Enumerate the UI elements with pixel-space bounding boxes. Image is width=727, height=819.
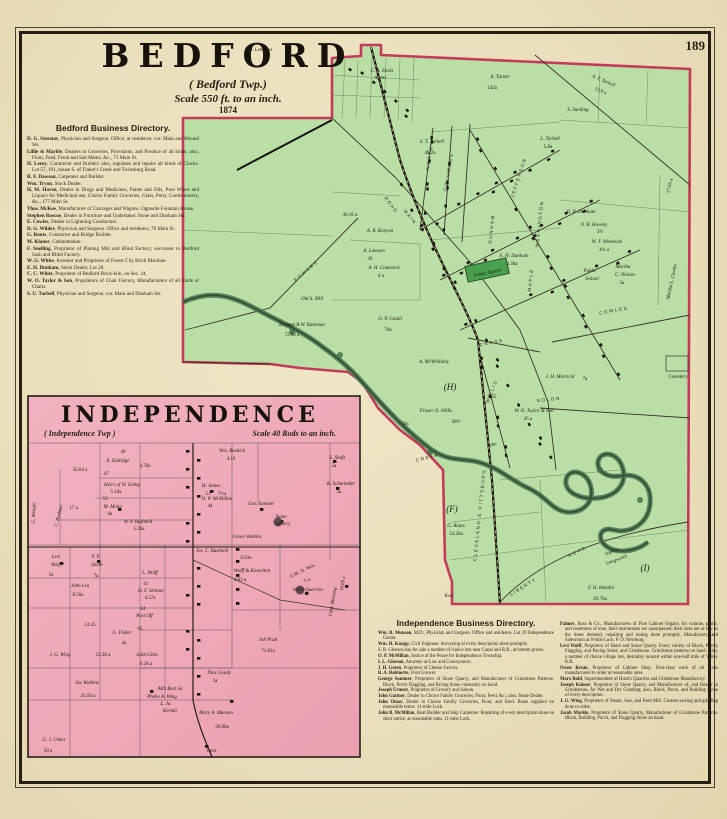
map-label: Cem. — [207, 749, 218, 754]
map-label: 4¾ a — [599, 248, 610, 253]
map-label: 12.38 a — [96, 653, 112, 658]
map-label: Jos. C. Bushnell — [196, 549, 229, 554]
map-label: 4.10 — [227, 457, 236, 462]
building — [197, 585, 200, 588]
map-label: 54.26a — [449, 532, 463, 537]
directory-entry: Thos. McKee, Manufacturer of Carriages a… — [27, 206, 199, 212]
directory-entry: Wm. Tryon, Stock Dealer. — [27, 181, 199, 187]
map-label: S. T. Tarbell — [420, 140, 445, 145]
independence-scale: Scale 40 Rods to an inch. — [252, 429, 336, 438]
map-label: 53 — [103, 497, 109, 502]
building — [186, 594, 189, 597]
map-label: A. Lamson — [362, 249, 385, 254]
map-label: A. Turner — [489, 75, 509, 80]
directory-entry: I. L. Gleeson, Attorney-at-Law and Conve… — [378, 660, 554, 665]
map-label: 4.36a — [507, 262, 519, 267]
building — [197, 639, 200, 642]
map-label: 44 — [208, 504, 214, 509]
directory-entry: W. O. Taylor & Son, Proprietors of Chair… — [27, 278, 199, 290]
building — [197, 513, 200, 516]
map-label: 7a — [94, 574, 100, 579]
map-label: 5.8a — [544, 145, 553, 150]
map-label: E. H. Dunham — [499, 254, 529, 259]
map-label: J. H. Morrical — [546, 375, 575, 380]
map-label: 56.04 a — [73, 468, 89, 473]
map-label: 65 — [138, 627, 144, 632]
directory-entry: C. C. White, Proprietor of Bedford Brick… — [27, 271, 199, 277]
building — [197, 459, 200, 462]
map-label: 7a — [583, 377, 589, 382]
directory-entry: D. G. Wilder, Physician and Surgeon. Off… — [27, 226, 199, 232]
map-label: 6.18 a — [140, 662, 153, 667]
map-label: Post Off. — [135, 614, 154, 619]
map-label: O. P. Gould — [378, 317, 402, 322]
map-label: 45 a — [524, 417, 533, 422]
map-label: 3½ — [597, 230, 604, 235]
directory-entry: John Gattner, Dealer in Choice Family Gr… — [378, 694, 554, 699]
tree — [597, 467, 603, 473]
directory-entry: D. G. Streator, Physician and Surgeon. O… — [27, 136, 199, 148]
map-label: Phebe A. Wing — [146, 695, 177, 700]
building — [236, 588, 239, 591]
map-label: 12.45 — [84, 623, 96, 628]
map-label: (F) — [446, 504, 458, 514]
map-label: A. H. Comstock — [367, 266, 400, 271]
atlas-page: 49E. Eldridge4.76a56.04 a47Heirs of W. G… — [0, 0, 727, 819]
map-label: Wolff & Knowlton — [234, 569, 271, 574]
directory-entry: Stephen Roscoe, Dealer in Furniture and … — [27, 213, 199, 219]
bedford-directory-heading: Bedford Business Directory. — [27, 123, 199, 133]
map-label: 5a — [620, 281, 626, 286]
tree — [337, 352, 343, 358]
map-label: G. Fisher — [112, 631, 131, 636]
directory-entry: M. Klaner, Cabinetmaker. — [27, 239, 199, 245]
building — [186, 450, 189, 453]
map-label: S. Snelling — [567, 108, 589, 113]
building — [444, 204, 447, 207]
map-label: 142a — [487, 86, 498, 91]
building — [150, 690, 153, 693]
building — [186, 630, 189, 633]
map-label: 4.57a — [145, 596, 157, 601]
directory-entry: Wm. B. Munson, M.D., Physician and Surge… — [378, 631, 554, 642]
map-label: L. Wolff — [141, 571, 158, 576]
directory-entry: O. P. McMillan, Justice of the Peace for… — [378, 654, 554, 659]
directory-entry: Joseph Kimser, Proprietor of Stone Quarr… — [560, 683, 718, 699]
map-label: John Giles — [136, 653, 158, 658]
map-label: 47 — [104, 472, 110, 477]
directory-entry: B. A. Robinette, Fruit Grower. — [378, 671, 554, 676]
bedford-title: BEDFORD — [78, 36, 378, 75]
directory-entry: Marx Buhl, Superintendent of Hurst's Qua… — [560, 677, 718, 682]
independence-directory-entries-1: Wm. B. Munson, M.D., Physician and Surge… — [378, 631, 554, 722]
independence-business-directory: Independence Business Directory. Wm. B. … — [378, 618, 720, 778]
map-label: E. Shaft — [328, 456, 345, 461]
independence-directory-entries-2: Palmer, Ross & Co., Manufacturers of Fin… — [560, 622, 718, 721]
map-label: Stone Quarries — [293, 588, 323, 593]
building — [443, 228, 446, 231]
building — [197, 495, 200, 498]
map-label: 17 a. — [69, 506, 79, 511]
map-label: Wolff — [51, 563, 62, 568]
bedford-year: 1874 — [78, 105, 378, 115]
map-label: 30 — [368, 257, 374, 262]
map-label: W. P. Bushnell — [124, 520, 153, 525]
map-label: (H) — [444, 382, 457, 392]
map-label: 38.16 a — [343, 213, 359, 218]
map-label: 61 — [144, 582, 150, 587]
building — [197, 477, 200, 480]
map-label: 70a — [384, 328, 392, 333]
map-label: A. McWhillohy — [418, 360, 450, 365]
directory-entry: S. B. Gleeson has for sale a number of c… — [378, 648, 554, 653]
directory-entry: H. M. Haven, Dealer in Drugs and Medicin… — [27, 187, 199, 205]
map-label: 64 — [141, 607, 147, 612]
map-label: Fraser O. Willis — [419, 409, 452, 414]
map-label: O. P. McMillan — [202, 497, 233, 502]
map-label: Thos Goudy — [207, 671, 232, 676]
building — [197, 567, 200, 570]
building — [186, 648, 189, 651]
map-label: Quarry — [276, 522, 292, 527]
map-label: F. H. Hamlin — [587, 586, 615, 591]
directory-entry: R. F. Dawson, Carpenter and Builder. — [27, 174, 199, 180]
directory-entry: J. G. Wing, Proprietor of Steam, Saw, an… — [560, 699, 718, 710]
map-label: 9.63a — [241, 556, 253, 561]
map-label: 3a — [213, 679, 219, 684]
independence-subtitle: ( Independence Twp ) — [44, 429, 115, 438]
independence-directory-col2: Palmer, Ross & Co., Manufacturers of Fin… — [560, 622, 718, 722]
map-label: 8.56a — [73, 593, 85, 598]
building — [260, 508, 263, 511]
map-label: 38½ — [452, 420, 461, 425]
map-label: 5.36a — [134, 527, 146, 532]
building — [197, 603, 200, 606]
map-label: A. R. Kenyon — [366, 229, 394, 234]
building — [426, 187, 429, 190]
map-label: 72.62 a — [285, 333, 301, 338]
building — [230, 700, 233, 703]
directory-entry: Palmer, Ross & Co., Manufacturers of Fin… — [560, 622, 718, 643]
directory-entry: S. U. Tarbell, Physician and Surgeon, co… — [27, 291, 199, 297]
map-label: Heirs of W. Gebig — [103, 483, 140, 488]
building — [430, 136, 433, 139]
building — [197, 693, 200, 696]
independence-title-block: INDEPENDENCE ( Independence Twp ) Scale … — [40, 402, 340, 438]
map-label: 5.10a — [111, 490, 123, 495]
independence-directory-col1: Independence Business Directory. Wm. B. … — [378, 618, 554, 723]
map-label: (I) — [641, 563, 650, 573]
map-label: 4.03 a — [234, 578, 247, 583]
bedford-title-block: BEDFORD ( Bedford Twp.) Scale 550 ft. to… — [78, 36, 378, 115]
map-label: Kor. — [445, 594, 454, 599]
page-number: 189 — [686, 38, 706, 54]
map-label: Green Watkins — [232, 535, 261, 540]
map-label: Cemetery — [668, 375, 688, 380]
map-label: G. Mengle — [32, 502, 38, 524]
independence-map-area: 49E. Eldridge4.76a56.04 a47Heirs of W. G… — [28, 396, 360, 757]
map-label: H. James — [201, 484, 221, 489]
map-label: L. Ja. — [159, 702, 171, 707]
building — [197, 675, 200, 678]
building — [236, 602, 239, 605]
independence-title: INDEPENDENCE — [40, 402, 340, 428]
map-label: 4a — [122, 641, 128, 646]
building — [236, 574, 239, 577]
map-label: Martha — [615, 265, 632, 270]
building — [236, 560, 239, 563]
map-label: 5a — [332, 464, 338, 469]
building — [424, 211, 427, 214]
bedford-directory-entries: D. G. Streator, Physician and Surgeon. O… — [27, 136, 199, 297]
map-label: C. Nelson — [615, 273, 635, 278]
map-label: 50a — [401, 422, 409, 427]
map-label: K. Schmiedler — [326, 482, 355, 487]
map-label: 6a — [108, 512, 114, 517]
map-label: Old S. Mill — [301, 297, 324, 302]
map-label: W. T. Wheelock — [592, 240, 623, 245]
building — [205, 745, 208, 748]
map-label: Kermit — [162, 709, 178, 714]
map-label: Geo. Sumner — [248, 502, 274, 507]
building — [186, 522, 189, 525]
map-label: Stone — [275, 515, 287, 520]
bedford-business-directory: Bedford Business Directory. D. G. Streat… — [27, 123, 199, 381]
map-label: Smith — [91, 563, 103, 568]
map-label: E. Eldridge — [105, 459, 130, 464]
map-label: Levi — [51, 555, 61, 560]
map-label: Job Pratt — [259, 638, 278, 643]
map-label: Erdman R.W. Bassman — [278, 323, 325, 328]
map-label: D. B. Dunham — [566, 210, 596, 215]
directory-entry: Levi Wolff, Proprietor of Hotel and Ston… — [560, 644, 718, 665]
map-label: L. Tarbell — [539, 137, 560, 142]
map-label: 5a — [49, 573, 55, 578]
map-label: D. F. Skinner — [137, 589, 164, 594]
building — [186, 486, 189, 489]
building — [426, 182, 429, 185]
map-label: Mary A. Munson — [198, 711, 233, 716]
map-label: J. G. Wing — [49, 653, 71, 658]
directory-entry: E. Cowles, Dealer in Lightning Conductor… — [27, 219, 199, 225]
building — [186, 468, 189, 471]
directory-entry: G. Routs, Contractor and Bridge Builder. — [27, 232, 199, 238]
map-label: M. Moler — [103, 505, 123, 510]
tree — [637, 497, 643, 503]
directory-entry: H. Leroy, Contractor and Builder; also, … — [27, 161, 199, 173]
bedford-subtitle: ( Bedford Twp.) — [78, 77, 378, 92]
directory-entry: George Sommer, Proprietor of Stone Quarr… — [378, 677, 554, 688]
directory-entry: Joseph Urmetz, Proprietor of Grocery and… — [378, 688, 554, 693]
map-label: 29.76a — [593, 597, 607, 602]
map-label: 71.81a — [261, 649, 275, 654]
building — [186, 540, 189, 543]
directory-entry: Lillie & Marble, Dealers in Groceries, P… — [27, 149, 199, 161]
directory-entry: W. G. White, Inventor and Proprietor of … — [27, 258, 199, 264]
map-label: W. O. Taylor & Son — [514, 409, 554, 414]
directory-entry: Owen Krum, Proprietor of Cabinet Shop. F… — [560, 666, 718, 677]
independence-directory-heading: Independence Business Directory. — [378, 618, 554, 628]
directory-entry: F. Snelling, Proprietor of Planing Mill … — [27, 246, 199, 258]
map-label: 50 a — [44, 749, 53, 754]
map-label: 9.05 — [488, 395, 497, 400]
map-label: N. B. Hawley — [580, 223, 608, 228]
directory-entry: John Omar, Dealer in Choice Family Groce… — [378, 700, 554, 711]
map-label: Wm. Bushick — [219, 449, 246, 454]
map-label: Albt Burt 5a — [157, 687, 183, 692]
map-label: 4 a — [378, 274, 385, 279]
directory-entry: Jacob Markle, Proprietor of Stone Quarry… — [560, 711, 718, 722]
bedford-scale: Scale 550 ft. to an inch. — [78, 93, 378, 105]
map-label: 5a — [337, 490, 343, 495]
map-label: 20.00a — [215, 725, 229, 730]
building — [210, 490, 213, 493]
map-label: 4.76a — [140, 464, 152, 469]
map-label: School — [585, 277, 599, 282]
directory-entry: J. H. Green, Proprietor of Cheese Factor… — [378, 666, 554, 671]
map-label: 43.50 a — [81, 694, 97, 699]
directory-entry: Wm. H. Knapp, Civil Engineer. Surveying … — [378, 642, 554, 647]
building — [197, 531, 200, 534]
map-label: F. F. — [91, 555, 101, 560]
building — [236, 548, 239, 551]
map-label: Public — [582, 269, 597, 274]
directory-entry: John B. McMillan, Boat Builder and Ship … — [378, 711, 554, 722]
map-label: Jas Watkins — [75, 681, 99, 686]
map-label: 49 — [121, 450, 127, 455]
building — [197, 657, 200, 660]
map-label: John Lea — [71, 584, 90, 589]
map-label: G. Routs — [447, 524, 465, 529]
map-label: G. J. Usher — [42, 738, 65, 743]
